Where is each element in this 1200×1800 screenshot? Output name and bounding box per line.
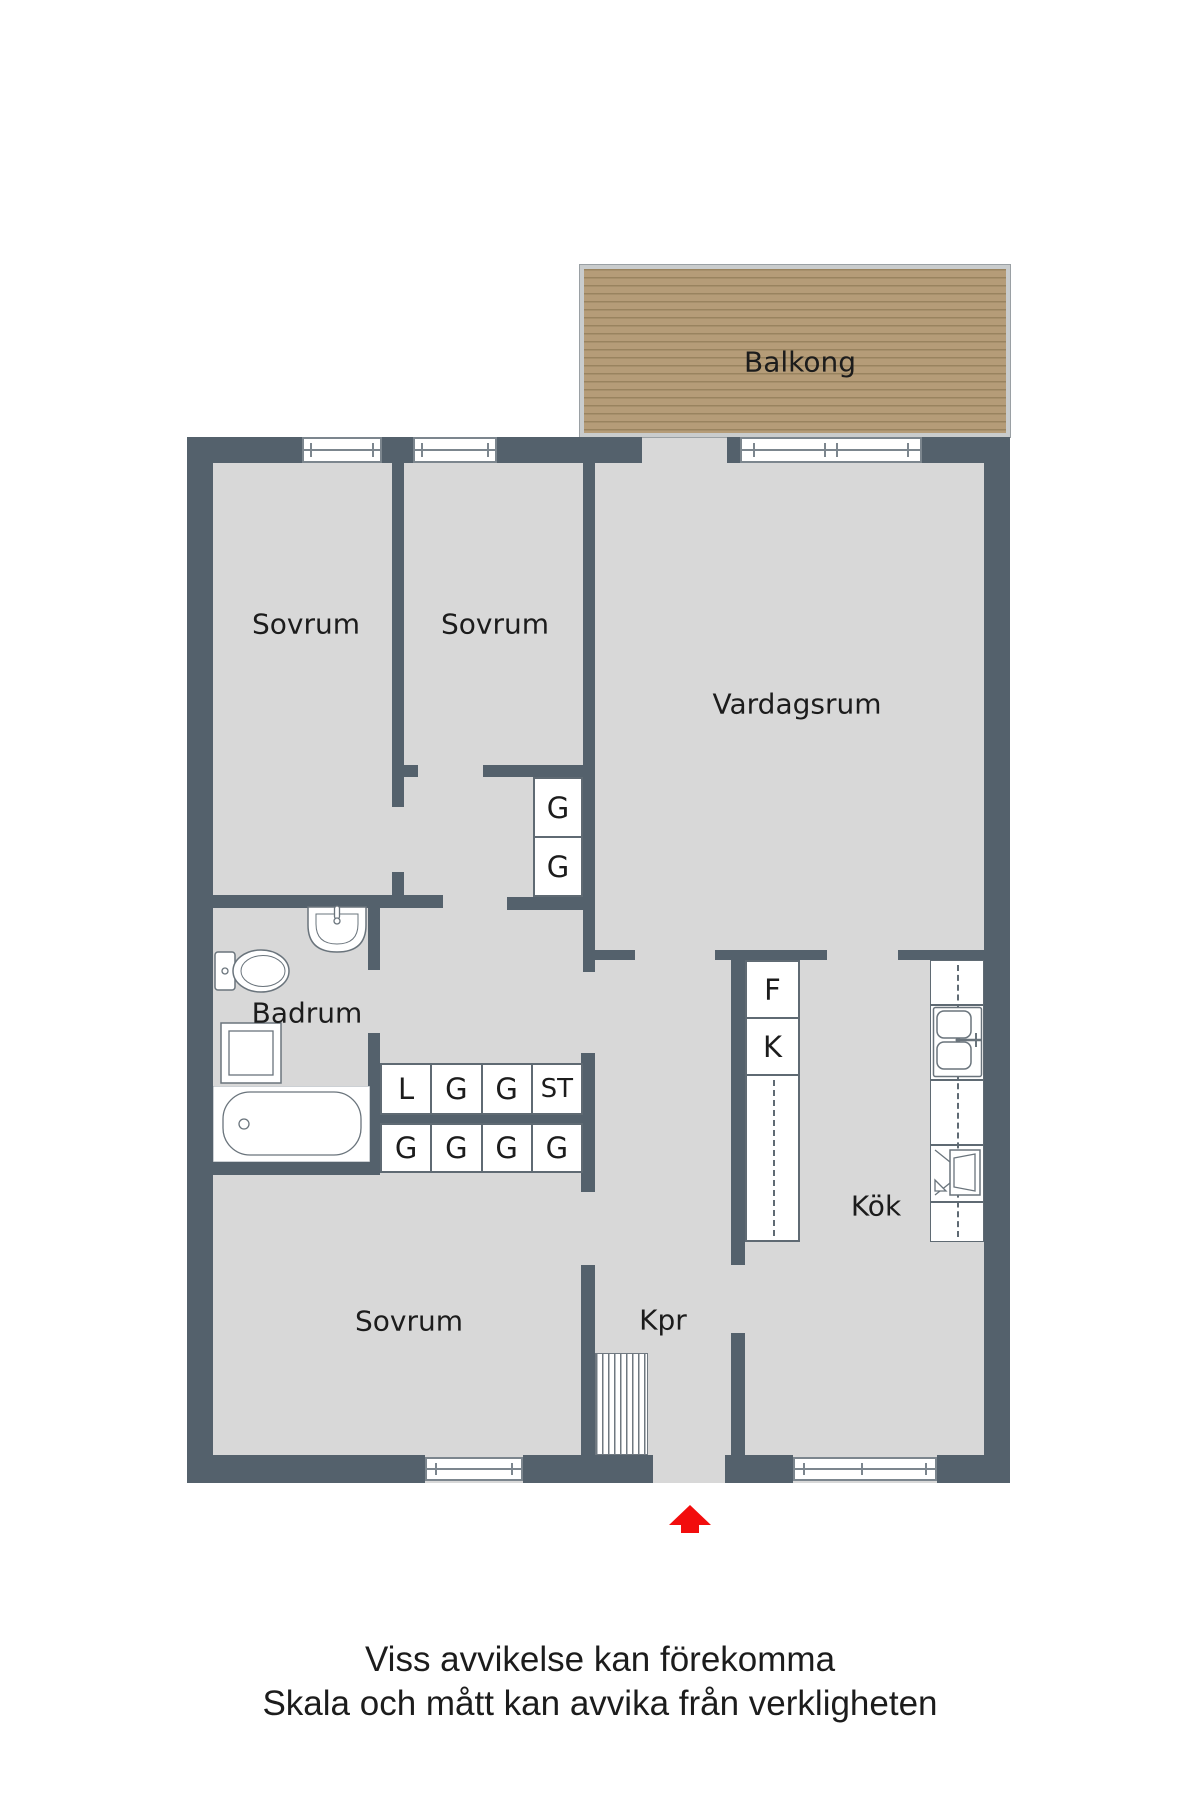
bedroom1-label: Sovrum — [252, 608, 360, 641]
closet-label: ST — [541, 1074, 573, 1104]
tall-cabinet — [747, 1076, 798, 1240]
wall-right — [984, 437, 1010, 1483]
window-kitchen — [793, 1457, 937, 1481]
closet-label: G — [445, 1072, 467, 1106]
wall — [187, 1455, 425, 1483]
hall-closet-row-bottom: G G G G — [380, 1123, 583, 1173]
fridge-label: F — [764, 973, 781, 1007]
window-bedroom3 — [425, 1457, 523, 1481]
window-bedroom1 — [302, 437, 382, 463]
closet-cell: G — [382, 1125, 430, 1171]
wall-bathroom-east — [368, 907, 380, 970]
wall — [727, 437, 740, 463]
wall — [715, 950, 827, 960]
wall — [898, 950, 984, 960]
wall-bedroom-east — [581, 1265, 595, 1455]
wall — [507, 897, 583, 910]
wall — [392, 872, 404, 896]
wall — [404, 765, 418, 777]
closet-cell: L — [382, 1065, 430, 1113]
window-bedroom2 — [413, 437, 497, 463]
hall-closet-row-top: L G G ST — [380, 1063, 583, 1115]
wall — [937, 1455, 1010, 1483]
freezer-cell: K — [747, 1019, 798, 1074]
washing-machine-icon — [220, 1022, 282, 1084]
sink-icon — [306, 905, 368, 955]
fridge-cell: F — [747, 962, 798, 1017]
closet-label: G — [547, 850, 569, 884]
closet-cell: G — [483, 1065, 531, 1113]
wall-bedroom-divider — [392, 463, 404, 807]
wall — [483, 765, 583, 777]
window-living-room — [740, 437, 922, 463]
wall — [725, 1455, 793, 1483]
balcony-label: Balkong — [744, 346, 856, 379]
fridge-freezer-unit: F K — [745, 960, 800, 1242]
closet-label: G — [445, 1131, 467, 1165]
closet-label: L — [398, 1072, 414, 1106]
living-room-label: Vardagsrum — [713, 688, 882, 721]
closet-cell: G — [533, 1125, 581, 1171]
wall-closet-spine — [380, 1115, 583, 1123]
closet-label: G — [495, 1072, 517, 1106]
closet-label: G — [547, 791, 569, 825]
closet-cell: G — [432, 1125, 480, 1171]
bathtub-icon — [213, 1086, 370, 1162]
floor-plan: Balkong G — [0, 0, 1200, 1800]
wall-hall-east — [581, 1053, 595, 1192]
wall-left — [187, 437, 213, 1483]
disclaimer-line1: Viss avvikelse kan förekomma — [0, 1638, 1200, 1682]
wardrobe-column: G G — [533, 777, 583, 897]
closet-label: G — [546, 1131, 568, 1165]
bedroom2-label: Sovrum — [441, 608, 549, 641]
wall-kitchen-west — [731, 960, 745, 1265]
apartment-floor — [187, 437, 1010, 1483]
stairs-icon — [595, 1353, 648, 1455]
closet-label: G — [395, 1131, 417, 1165]
wall — [595, 950, 635, 960]
wall — [382, 437, 413, 463]
wall-bathroom-south — [213, 1160, 378, 1175]
entrance-arrow-icon — [668, 1505, 712, 1535]
closet-cell: G — [535, 838, 581, 895]
kitchen-label: Kök — [851, 1190, 901, 1223]
wall — [523, 1455, 653, 1483]
bathroom-label: Badrum — [252, 997, 363, 1030]
disclaimer: Viss avvikelse kan förekomma Skala och m… — [0, 1638, 1200, 1726]
bedroom3-label: Sovrum — [355, 1305, 463, 1338]
closet-cell: G — [535, 779, 581, 836]
freezer-label: K — [763, 1030, 782, 1064]
kitchen-counter — [930, 960, 984, 1242]
kitchen-sink-icon — [932, 1006, 983, 1078]
wall-kitchen-west — [731, 1333, 745, 1455]
hallway-label: Kpr — [639, 1304, 687, 1337]
stove-icon — [932, 1146, 983, 1199]
toilet-icon — [214, 948, 292, 994]
disclaimer-line2: Skala och mått kan avvika från verklighe… — [0, 1682, 1200, 1726]
closet-label: G — [495, 1131, 517, 1165]
closet-cell: G — [483, 1125, 531, 1171]
wall-living-west — [583, 463, 595, 972]
closet-cell: ST — [533, 1065, 581, 1113]
wall — [497, 437, 642, 463]
closet-cell: G — [432, 1065, 480, 1113]
